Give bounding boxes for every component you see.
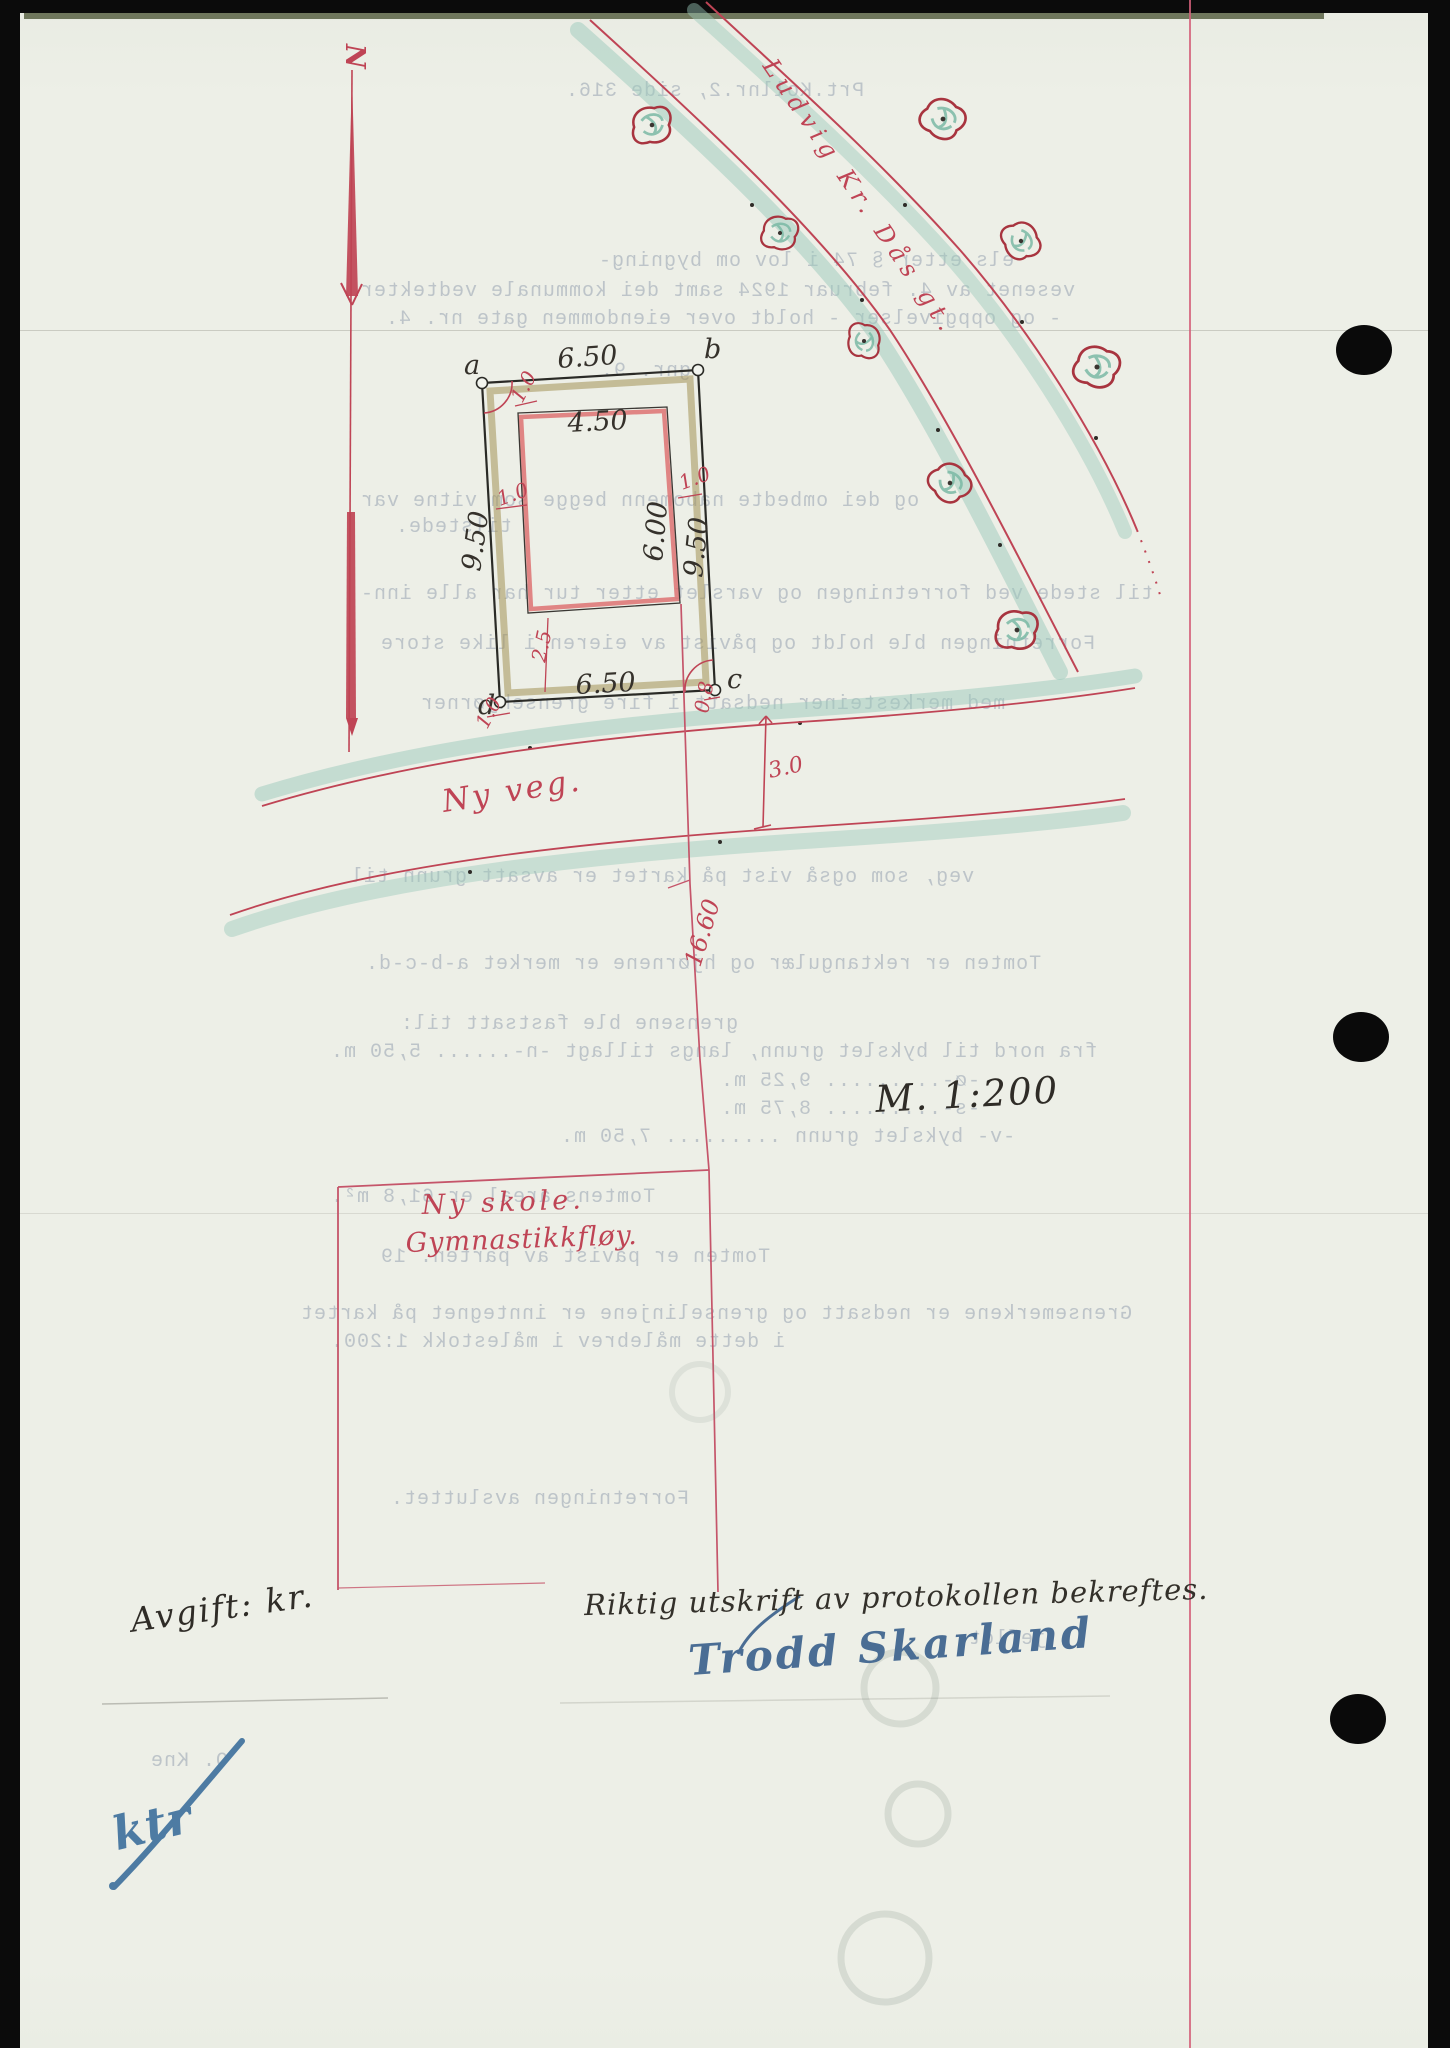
dim-offset-tl: 1.0	[505, 367, 541, 407]
site-plan-drawing: N 3.0 Ny veg. Ludvig Kr. Dås gt. a b c d	[0, 0, 1450, 2048]
corner-label-b: b	[704, 334, 721, 365]
tree-icon	[915, 92, 970, 147]
road-shading-lower	[232, 813, 1123, 929]
north-arrow-feather-upper	[346, 76, 358, 296]
pencil-rule-right	[560, 1696, 1110, 1703]
dim-inner-top: 4.50	[566, 405, 629, 439]
ghost-stamp	[672, 1364, 728, 1420]
initials-paraph-end	[109, 1882, 117, 1890]
school-edge-bottom	[338, 1583, 545, 1588]
distance-line-group	[668, 604, 718, 1592]
corner-label-a: a	[464, 350, 480, 381]
north-arrow-feather-lower	[346, 512, 356, 718]
school-label-1: Ny skole.	[420, 1184, 585, 1221]
corner-label-c: c	[727, 664, 742, 695]
dim-right: 9.50	[678, 516, 715, 579]
scanned-protocol-page: Prt.Kollnr.2, side 316. els etter § 74 i…	[0, 0, 1450, 2048]
ghost-stamp	[841, 1914, 929, 2002]
street-name-label: Ludvig Kr. Dås gt.	[756, 52, 964, 340]
dim-top: 6.50	[556, 340, 618, 375]
north-arrow: N	[339, 43, 370, 752]
tree-icon	[998, 218, 1043, 263]
school-edge-top	[338, 1170, 709, 1187]
street-edge-right-dashed	[1137, 530, 1162, 602]
road-width-label: 3.0	[766, 752, 805, 784]
corner-marker-b	[693, 365, 704, 376]
distance-line	[681, 604, 718, 1592]
distance-line-tick	[668, 880, 690, 888]
dim-inner-right: 6.00	[638, 500, 674, 563]
ghost-stamp	[888, 1784, 948, 1844]
distance-label: 16.60	[679, 896, 726, 970]
dim-bottom-gap: 2.5	[526, 628, 556, 665]
dim-offset-right: 1.0	[676, 461, 714, 495]
road-name-label: Ny veg.	[439, 762, 585, 820]
dim-left: 9.50	[456, 509, 495, 573]
scale-label: M. 1:200	[873, 1068, 1060, 1121]
pencil-rule-left	[102, 1698, 388, 1704]
north-arrow-tail	[346, 718, 358, 736]
school-label-2: Gymnastikkfløy.	[405, 1220, 638, 1259]
dim-bottom: 6.50	[575, 667, 637, 701]
north-label: N	[339, 43, 370, 70]
tree-icon	[1070, 340, 1124, 394]
